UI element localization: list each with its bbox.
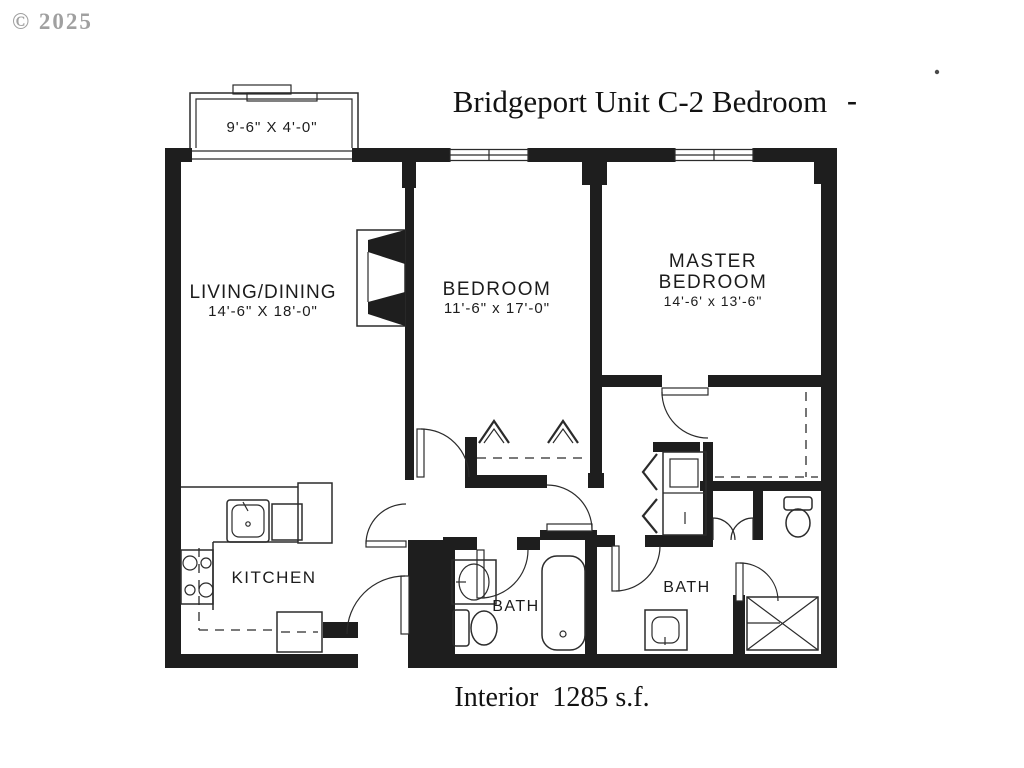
door-swing-arc bbox=[421, 429, 469, 477]
wall-notch bbox=[814, 160, 821, 184]
vanity bbox=[645, 610, 687, 650]
kitchen-label: KITCHEN bbox=[231, 568, 316, 587]
wall-bath1-top bbox=[517, 537, 540, 550]
kitchen-drain bbox=[246, 522, 250, 526]
bedroom-closet bbox=[477, 421, 588, 458]
wall-bottom-seg bbox=[408, 654, 837, 668]
refrigerator bbox=[298, 483, 332, 543]
scan-artifact-dot bbox=[935, 70, 939, 74]
stove bbox=[181, 550, 213, 604]
master-walk-in-closet bbox=[715, 392, 818, 477]
wall-top-seg bbox=[165, 148, 192, 162]
door-leaf bbox=[662, 388, 708, 395]
master-window bbox=[675, 148, 753, 162]
fireplace bbox=[357, 230, 405, 326]
wall-bedroom-bottom bbox=[465, 475, 547, 488]
wall-corridor-stub bbox=[597, 535, 615, 547]
entry-door-leaf bbox=[401, 576, 409, 634]
master-bedroom-dims: 14'-6' x 13'-6" bbox=[664, 293, 763, 309]
master-bedroom-label-2: BEDROOM bbox=[659, 272, 768, 293]
toilet-tank bbox=[453, 610, 469, 646]
door-swing-arc bbox=[366, 504, 406, 544]
bifold-door-chevron bbox=[643, 454, 657, 490]
kitchen-faucet bbox=[243, 502, 248, 511]
living-dining-dims: 14'-6" X 18'-0" bbox=[208, 303, 318, 320]
wall-linen-top bbox=[653, 442, 700, 452]
wall-shower-left bbox=[733, 595, 745, 654]
bath-main-label: BATH bbox=[492, 598, 539, 615]
bath-master-label: BATH bbox=[663, 579, 710, 596]
wall-master-bottom bbox=[708, 375, 823, 387]
wall-bedroom-master bbox=[590, 162, 602, 480]
wall-hall-stub bbox=[588, 473, 604, 488]
wc-door-leafs bbox=[713, 518, 753, 540]
wall-top-seg bbox=[753, 148, 837, 162]
bedroom-window bbox=[450, 148, 528, 162]
wall-bottom-seg bbox=[165, 654, 358, 668]
master-bedroom-label-1: MASTER bbox=[669, 251, 757, 272]
door-leaf bbox=[366, 541, 406, 547]
balcony-door-opening bbox=[192, 151, 352, 159]
bedroom-dims: 11'-6" x 17'-0" bbox=[444, 300, 550, 317]
wall-linen-right bbox=[703, 442, 713, 547]
kitchen-sink bbox=[227, 500, 269, 542]
door-leaf bbox=[736, 563, 743, 601]
linen-shelf bbox=[670, 459, 698, 487]
door-leaf bbox=[547, 524, 592, 531]
bathtub-drain bbox=[560, 631, 566, 637]
plan-title: Bridgeport Unit C-2 Bedroom bbox=[453, 84, 828, 119]
wall-living-bedroom bbox=[405, 162, 414, 480]
wall-wc-top bbox=[700, 481, 823, 491]
wall-closet-stub bbox=[465, 437, 477, 482]
bifold-door-chevron bbox=[548, 421, 578, 443]
door-swing-arc bbox=[616, 546, 660, 591]
fireplace-side bbox=[368, 230, 405, 264]
interior-area-text: Interior 1285 s.f. bbox=[454, 682, 649, 713]
wall-wc-stub bbox=[753, 491, 763, 540]
shower bbox=[747, 597, 818, 650]
toilet-bowl bbox=[471, 611, 497, 645]
copyright-watermark: © 2025 bbox=[12, 9, 93, 34]
toilet-bowl bbox=[786, 509, 810, 537]
door-leaf bbox=[477, 550, 484, 598]
bedroom-label: BEDROOM bbox=[443, 279, 552, 300]
floor-plan-drawing: © 2025 Bridgeport Unit C-2 Bedroom - Int… bbox=[0, 0, 1024, 768]
linen-closet bbox=[643, 452, 706, 535]
living-dining-label: LIVING/DINING bbox=[189, 282, 336, 303]
bifold-door-chevron bbox=[479, 421, 509, 443]
wall-bath1-top bbox=[455, 537, 477, 550]
door-swing-arc bbox=[662, 392, 708, 438]
wall-right bbox=[821, 148, 837, 668]
door-swing-arc bbox=[547, 485, 592, 530]
wall-left bbox=[165, 148, 181, 668]
title-dash: - bbox=[847, 84, 857, 117]
door-swing-arc bbox=[740, 563, 778, 601]
balcony-dims: 9'-6" X 4'-0" bbox=[226, 119, 317, 136]
bath-master-fixtures bbox=[645, 497, 818, 650]
wall-linen-bottom bbox=[645, 535, 713, 547]
door-leaf bbox=[612, 546, 619, 591]
bifold-door-chevron bbox=[643, 499, 657, 533]
wall-master-bottom bbox=[602, 375, 662, 387]
fireplace-side bbox=[368, 292, 405, 326]
door-leaf bbox=[417, 429, 424, 477]
wall-tub-right bbox=[585, 530, 597, 654]
entry-alcove-wall bbox=[323, 622, 358, 638]
floor-plan-page: © 2025 Bridgeport Unit C-2 Bedroom - Int… bbox=[0, 0, 1024, 768]
toilet-tank bbox=[784, 497, 812, 510]
wall-top-seg bbox=[352, 148, 450, 162]
bathtub bbox=[542, 556, 585, 650]
